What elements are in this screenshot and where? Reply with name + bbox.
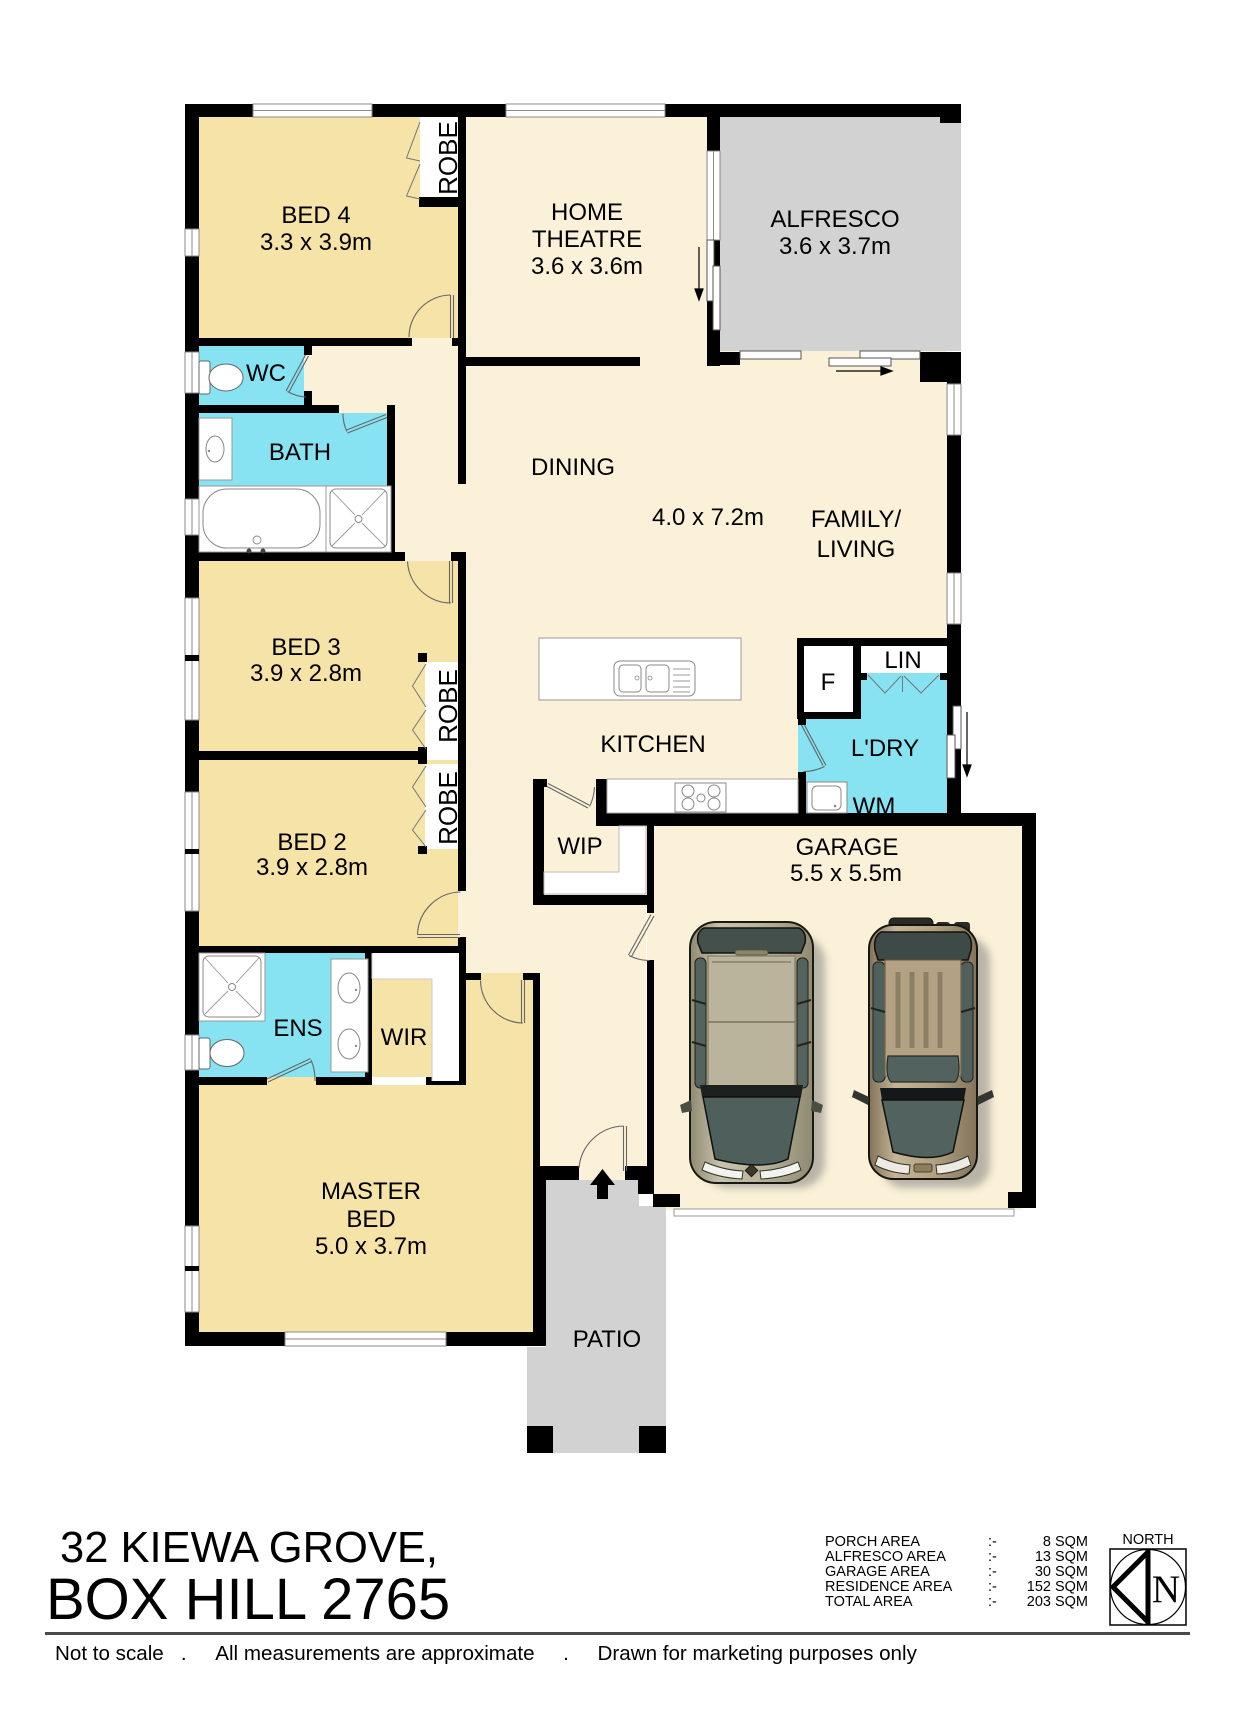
svg-text:ROBE: ROBE [433,121,463,195]
svg-text:5.5 x 5.5m: 5.5 x 5.5m [790,860,902,887]
svg-text:30 SQM: 30 SQM [1035,1564,1088,1580]
svg-text:MASTER: MASTER [321,1178,421,1205]
svg-text:4.0 x 7.2m: 4.0 x 7.2m [652,504,764,531]
svg-text:F: F [821,669,836,696]
svg-text:WM: WM [853,793,896,820]
svg-text:LIVING: LIVING [817,536,896,563]
svg-text:RESIDENCE AREA: RESIDENCE AREA [825,1579,953,1595]
svg-text:3.6 x 3.6m: 3.6 x 3.6m [531,253,643,280]
svg-text:FAMILY/: FAMILY/ [811,506,902,533]
svg-text:13 SQM: 13 SQM [1035,1549,1088,1565]
svg-text:203 SQM: 203 SQM [1027,1594,1088,1610]
svg-text:PATIO: PATIO [573,1326,641,1353]
svg-text:32 KIEWA GROVE,: 32 KIEWA GROVE, [60,1524,438,1572]
svg-text:8 SQM: 8 SQM [1043,1534,1088,1550]
svg-text:GARAGE AREA: GARAGE AREA [825,1564,930,1580]
svg-text::-: :- [988,1534,997,1550]
svg-text:ROBE: ROBE [433,669,463,743]
svg-text:BED 4: BED 4 [281,202,350,229]
svg-text:3.6 x 3.7m: 3.6 x 3.7m [779,233,891,260]
svg-text:LIN: LIN [884,647,921,674]
svg-text:PORCH AREA: PORCH AREA [825,1534,920,1550]
svg-text::-: :- [988,1564,997,1580]
svg-text:BOX HILL 2765: BOX HILL 2765 [46,1567,450,1632]
svg-text:THEATRE: THEATRE [532,226,642,253]
svg-text:5.0 x 3.7m: 5.0 x 3.7m [315,1233,427,1260]
svg-text:BED: BED [346,1206,395,1233]
svg-text:ALFRESCO AREA: ALFRESCO AREA [825,1549,946,1565]
svg-text::-: :- [988,1594,997,1610]
svg-text:NORTH: NORTH [1122,1532,1173,1548]
svg-text:ROBE: ROBE [433,771,463,845]
svg-text:WIR: WIR [381,1024,428,1051]
svg-text:3.9 x 2.8m: 3.9 x 2.8m [250,660,362,687]
svg-text:3.3 x 3.9m: 3.3 x 3.9m [260,229,372,256]
svg-text:ENS: ENS [273,1015,322,1042]
svg-text:3.9 x 2.8m: 3.9 x 2.8m [256,854,368,881]
svg-text:L'DRY: L'DRY [851,735,919,762]
svg-text:KITCHEN: KITCHEN [600,731,705,758]
svg-text:WC: WC [246,360,286,387]
svg-text::-: :- [988,1549,997,1565]
svg-text:TOTAL AREA: TOTAL AREA [825,1594,913,1610]
svg-text:DINING: DINING [531,454,615,481]
svg-text:GARAGE: GARAGE [796,834,899,861]
svg-text:BED 3: BED 3 [271,634,340,661]
svg-text:N: N [1152,1568,1180,1611]
svg-text:BED 2: BED 2 [277,829,346,856]
svg-text:152 SQM: 152 SQM [1027,1579,1088,1595]
svg-text:BATH: BATH [269,439,331,466]
svg-text:ALFRESCO: ALFRESCO [770,206,899,233]
svg-text::-: :- [988,1579,997,1595]
svg-text:Not to scale . All measu: Not to scale . All measurements are appr… [55,1642,918,1665]
svg-text:WIP: WIP [557,833,602,860]
svg-text:HOME: HOME [551,199,623,226]
